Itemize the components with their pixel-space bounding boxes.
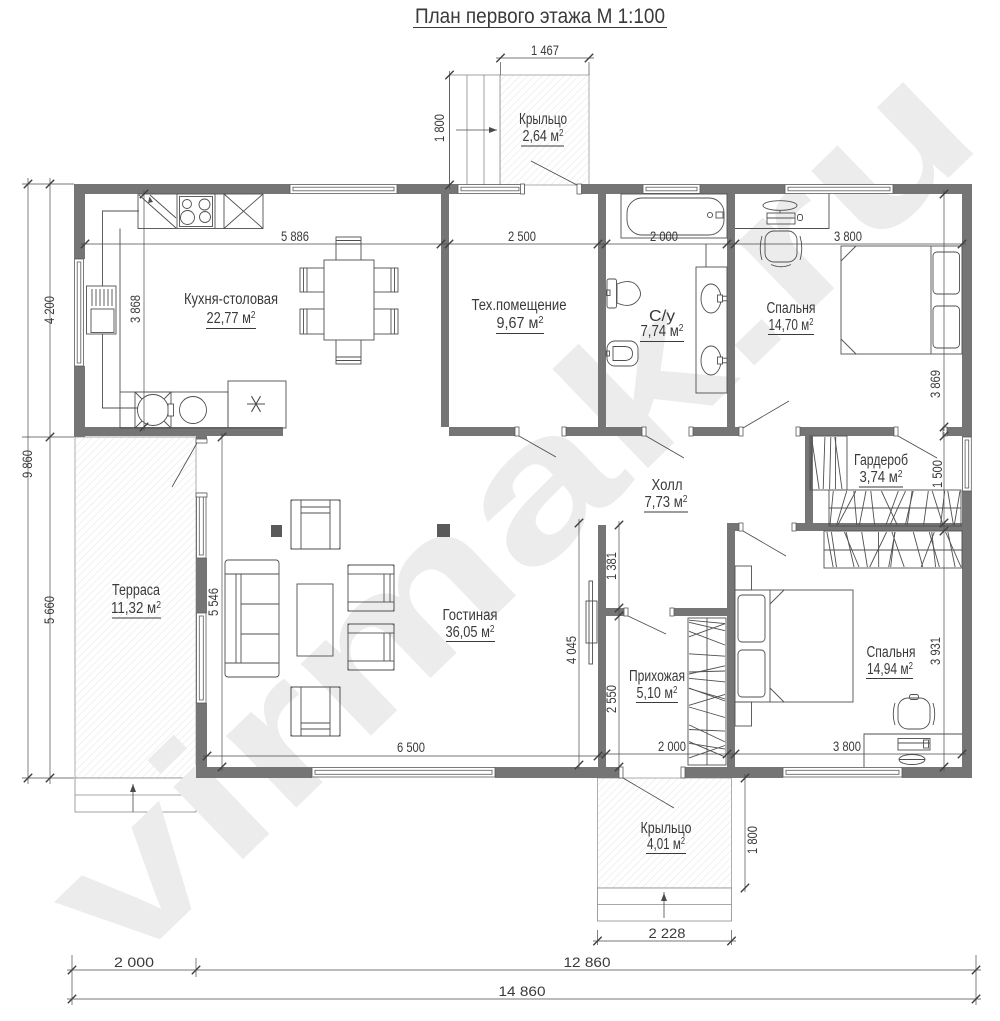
svg-text:2 000: 2 000 xyxy=(650,228,678,244)
svg-text:План первого этажа М 1:100: План первого этажа М 1:100 xyxy=(415,5,665,28)
svg-text:12 860: 12 860 xyxy=(564,954,611,970)
svg-text:22,77 м2: 22,77 м2 xyxy=(207,310,256,327)
svg-text:1 500: 1 500 xyxy=(929,460,945,488)
svg-text:3 869: 3 869 xyxy=(927,370,943,398)
svg-text:Гардероб: Гардероб xyxy=(854,452,908,469)
svg-text:2,64 м2: 2,64 м2 xyxy=(523,128,564,145)
svg-text:7,73 м2: 7,73 м2 xyxy=(645,494,688,511)
svg-text:Прихожая: Прихожая xyxy=(629,668,685,685)
svg-text:5,10 м2: 5,10 м2 xyxy=(637,685,678,702)
svg-text:Крыльцо: Крыльцо xyxy=(641,820,692,837)
svg-text:Спальня: Спальня xyxy=(767,300,816,317)
svg-text:36,05 м2: 36,05 м2 xyxy=(446,624,495,641)
svg-text:9,67 м2: 9,67 м2 xyxy=(497,315,544,332)
svg-text:2 228: 2 228 xyxy=(649,925,686,941)
svg-text:2 550: 2 550 xyxy=(603,685,619,713)
svg-text:3,74 м2: 3,74 м2 xyxy=(860,469,903,486)
svg-text:Крыльцо: Крыльцо xyxy=(519,111,567,128)
svg-text:3 800: 3 800 xyxy=(834,228,862,244)
svg-text:2 000: 2 000 xyxy=(114,954,154,970)
svg-text:14 860: 14 860 xyxy=(499,983,546,999)
svg-text:2 500: 2 500 xyxy=(508,228,536,244)
svg-text:4 200: 4 200 xyxy=(41,296,57,324)
svg-text:3 931: 3 931 xyxy=(927,637,943,665)
svg-text:1 467: 1 467 xyxy=(531,42,559,58)
svg-text:1 381: 1 381 xyxy=(603,552,619,580)
svg-text:3 868: 3 868 xyxy=(127,295,143,323)
svg-text:11,32 м2: 11,32 м2 xyxy=(111,600,161,617)
svg-text:5 546: 5 546 xyxy=(205,588,221,616)
svg-text:Терраса: Терраса xyxy=(112,582,160,599)
svg-text:5 660: 5 660 xyxy=(41,596,57,624)
svg-text:Тех.помещение: Тех.помещение xyxy=(472,297,567,314)
svg-text:6 500: 6 500 xyxy=(397,739,425,755)
svg-text:Спальня: Спальня xyxy=(867,644,916,661)
svg-text:4,01 м2: 4,01 м2 xyxy=(647,836,685,853)
svg-text:14,70 м2: 14,70 м2 xyxy=(769,317,814,334)
svg-text:5 886: 5 886 xyxy=(281,228,309,244)
svg-text:14,94 м2: 14,94 м2 xyxy=(867,661,913,678)
svg-text:1 800: 1 800 xyxy=(744,826,760,854)
svg-text:2 000: 2 000 xyxy=(658,738,686,754)
svg-text:4 045: 4 045 xyxy=(563,636,579,664)
svg-text:Кухня-столовая: Кухня-столовая xyxy=(184,291,278,308)
svg-text:3 800: 3 800 xyxy=(833,738,861,754)
svg-text:7,74 м2: 7,74 м2 xyxy=(641,323,684,340)
svg-text:1 800: 1 800 xyxy=(431,114,447,142)
svg-text:Холл: Холл xyxy=(652,477,683,494)
svg-text:Гостиная: Гостиная xyxy=(443,607,498,624)
svg-text:9 860: 9 860 xyxy=(19,450,35,478)
